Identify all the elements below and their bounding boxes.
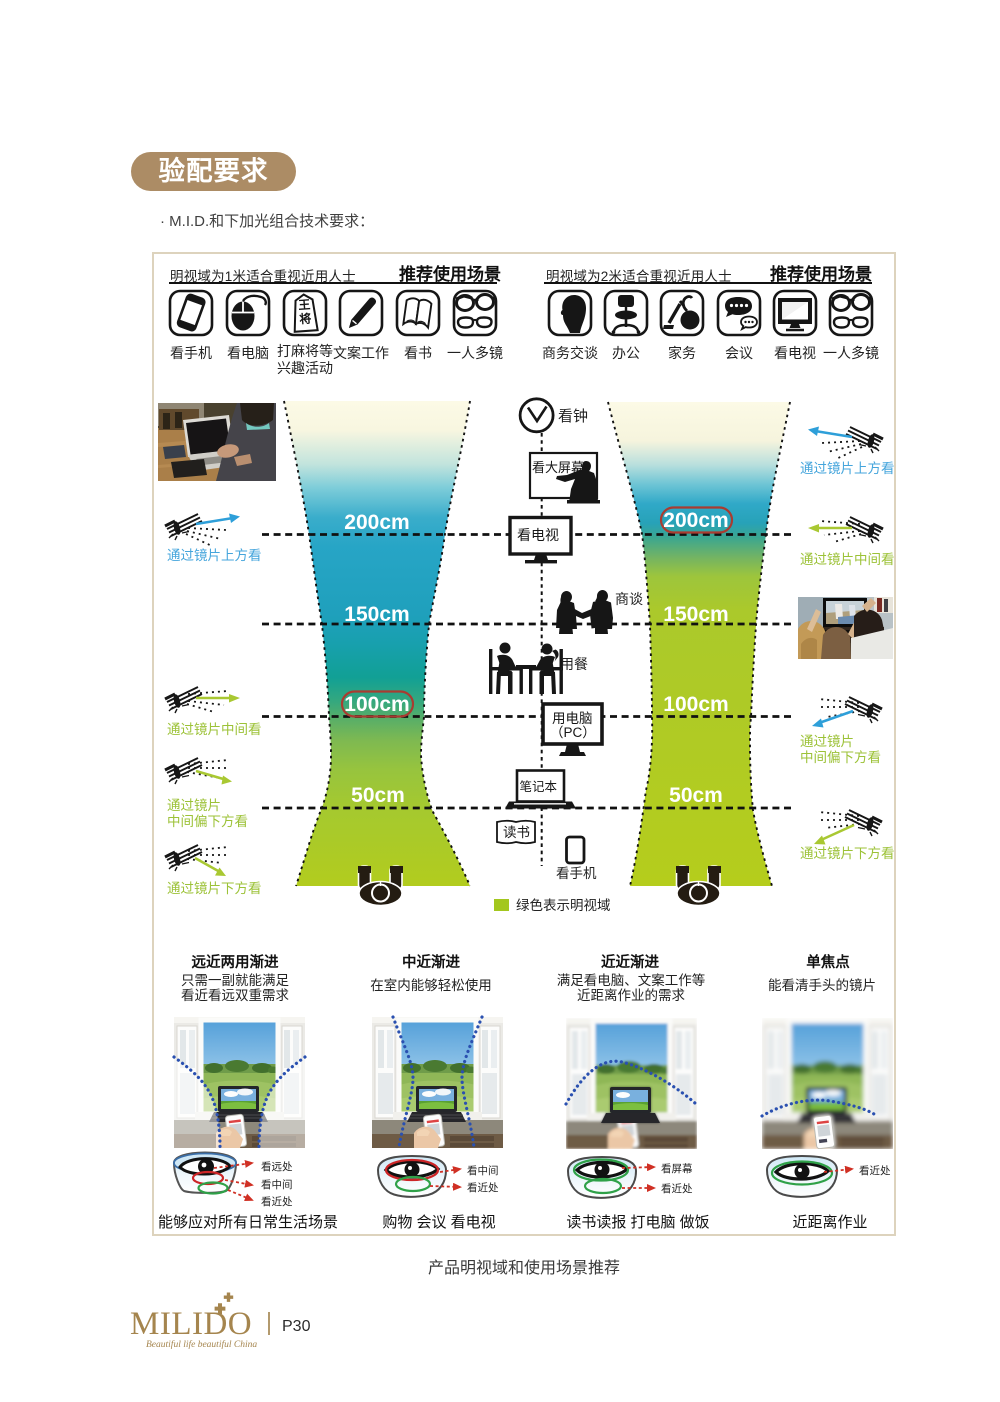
svg-text:将: 将 xyxy=(299,311,312,327)
svg-text:用电脑: 用电脑 xyxy=(552,711,593,726)
svg-text:看远处: 看远处 xyxy=(261,1160,293,1173)
svg-text:200cm: 200cm xyxy=(663,509,728,532)
svg-text:看近处: 看近处 xyxy=(859,1164,891,1177)
svg-text:看近处: 看近处 xyxy=(661,1182,693,1195)
svg-text:看钟: 看钟 xyxy=(558,408,588,425)
svg-text:（PC）: （PC） xyxy=(550,725,596,740)
svg-text:通过镜片下方看: 通过镜片下方看 xyxy=(167,881,262,896)
svg-text:中间偏下方看: 中间偏下方看 xyxy=(800,750,881,765)
svg-text:通过镜片: 通过镜片 xyxy=(167,798,221,813)
svg-text:王: 王 xyxy=(298,298,311,313)
svg-text:100cm: 100cm xyxy=(663,693,728,716)
svg-text:看电视: 看电视 xyxy=(517,527,559,543)
svg-text:通过镜片: 通过镜片 xyxy=(800,734,854,749)
svg-text:通过镜片下方看: 通过镜片下方看 xyxy=(800,846,895,861)
svg-text:笔记本: 笔记本 xyxy=(520,779,558,794)
svg-text:150cm: 150cm xyxy=(344,603,409,626)
svg-text:50cm: 50cm xyxy=(669,784,723,807)
svg-text:绿色表示明视域: 绿色表示明视域 xyxy=(516,897,611,913)
svg-text:读书: 读书 xyxy=(503,825,530,840)
svg-text:通过镜片上方看: 通过镜片上方看 xyxy=(167,548,262,563)
svg-text:150cm: 150cm xyxy=(663,603,728,626)
svg-text:用餐: 用餐 xyxy=(560,656,588,672)
svg-text:看中间: 看中间 xyxy=(467,1164,499,1177)
svg-text:看屏幕: 看屏幕 xyxy=(661,1162,693,1175)
svg-text:50cm: 50cm xyxy=(351,784,405,807)
svg-text:200cm: 200cm xyxy=(344,511,409,534)
svg-text:100cm: 100cm xyxy=(344,693,409,716)
svg-text:看手机: 看手机 xyxy=(556,866,597,881)
svg-text:看近处: 看近处 xyxy=(467,1181,499,1194)
svg-text:通过镜片中间看: 通过镜片中间看 xyxy=(167,722,262,737)
svg-text:看近处: 看近处 xyxy=(261,1195,293,1208)
svg-text:中间偏下方看: 中间偏下方看 xyxy=(167,814,248,829)
svg-text:看中间: 看中间 xyxy=(261,1178,293,1191)
svg-text:通过镜片上方看: 通过镜片上方看 xyxy=(800,461,895,476)
svg-text:通过镜片中间看: 通过镜片中间看 xyxy=(800,552,895,567)
svg-text:商谈: 商谈 xyxy=(615,591,643,607)
